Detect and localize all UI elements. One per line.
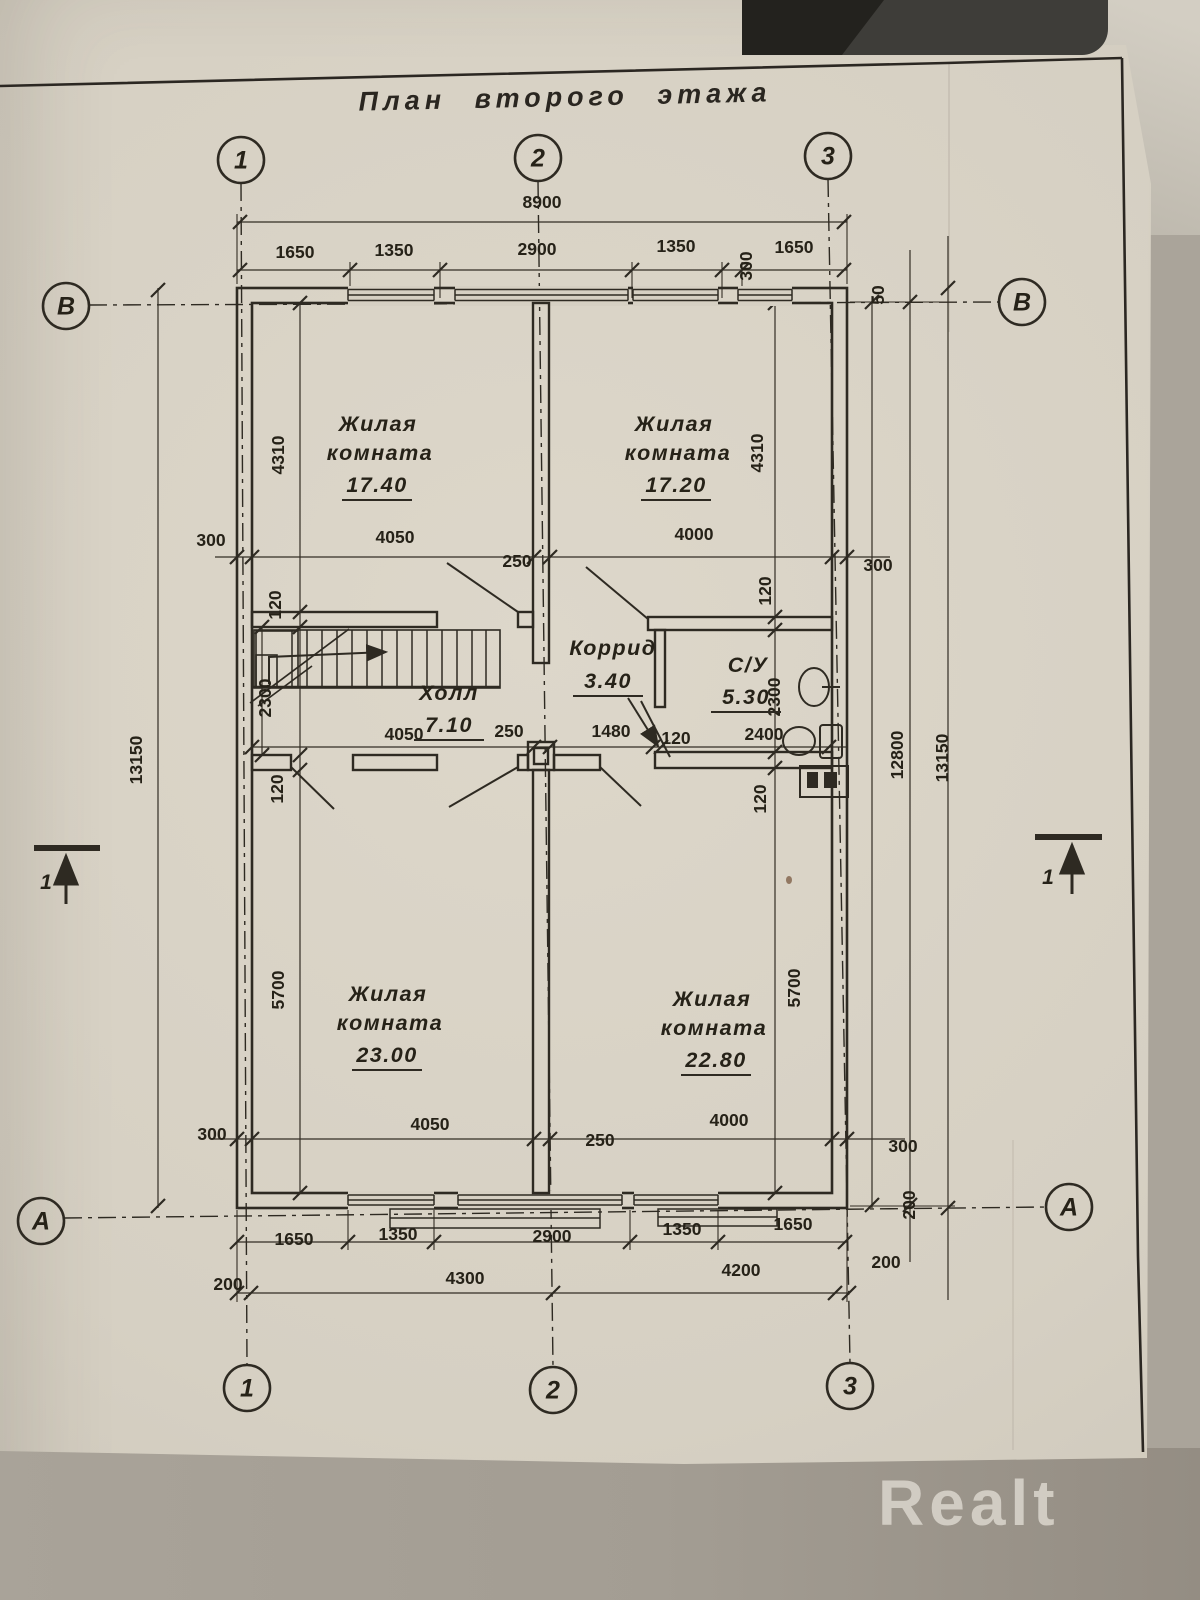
room-label: С/У [728,653,769,677]
dimension-label: 13150 [126,735,146,784]
dimension-label: 120 [750,784,770,813]
room-area-label: 7.10 [425,713,473,737]
dimension-label: 120 [267,774,287,803]
axis-marker-label: 3 [843,1373,857,1401]
room-area-label: 22.80 [684,1048,746,1072]
room-label: комната [337,1011,443,1035]
dark-object-on-table [742,0,1108,55]
room-label: Жилая [338,412,418,436]
room-label: комната [327,441,433,465]
dimension-label: 200 [899,1190,919,1219]
dimension-label: 300 [197,1124,226,1144]
dimension-label: 200 [871,1252,900,1272]
dimension-label: 1350 [379,1224,418,1244]
dimension-label: 5700 [784,968,804,1007]
dimension-label: 8900 [523,192,562,212]
dimension-label: 4050 [411,1114,450,1134]
dimension-label: 1480 [592,721,631,741]
photographed-floor-plan: { "title": "План второго этажа", "waterm… [0,0,1200,1600]
axis-marker-label: А [1059,1194,1078,1222]
room-label: Холл [418,681,478,705]
dimension-label: 120 [755,576,775,605]
axis-markers: 123123ВВАА [18,133,1092,1413]
dimension-label: 200 [213,1274,242,1294]
dimension-label: 1650 [774,1214,813,1234]
axis-marker-label: В [1013,289,1031,317]
dimension-label: 250 [502,551,531,571]
axis-marker-label: 1 [234,147,248,175]
axis-marker-label: А [31,1208,50,1236]
dimension-label: 13150 [932,733,952,782]
room-label: комната [625,441,731,465]
dimension-label: 4000 [710,1110,749,1130]
dimension-label: 300 [863,555,892,575]
floor-plan-drawing: 123123ВВАА 89001650135029001350300165030… [0,0,1200,1600]
room-label: Жилая [672,987,752,1011]
axis-marker-label: 1 [240,1375,254,1403]
room-area-label: 3.40 [584,669,632,693]
dimension-label: 1650 [775,237,814,257]
room-label: Коррид [569,636,656,660]
dimension-label: 1350 [657,236,696,256]
dimension-label: 2900 [518,239,557,259]
dimension-label: 250 [494,721,523,741]
room-area-label: 5.30 [722,685,770,709]
room-label: Жилая [634,412,714,436]
dimension-label: 1650 [275,1229,314,1249]
room-label: Жилая [348,982,428,1006]
dimension-label: 1350 [375,240,414,260]
axis-marker-label: 2 [530,145,545,173]
axis-marker-label: В [57,293,75,321]
room-area-label: 23.00 [355,1043,417,1067]
dimension-label: 50 [868,285,888,305]
dimension-label: 12800 [887,730,907,779]
dimension-label: 250 [585,1130,614,1150]
dimension-label: 4310 [268,435,288,474]
realt-watermark: Realt [878,1466,1060,1540]
washing-machine-symbol [800,766,848,797]
dimension-label: 2900 [533,1226,572,1246]
room-area-label: 17.20 [645,473,706,497]
dimension-label: 1650 [276,242,315,262]
dimension-label: 300 [196,530,225,550]
dimension-label: 5700 [268,970,288,1009]
section-number: 1 [40,871,52,894]
dimension-label: 4000 [675,524,714,544]
room-label: комната [661,1016,767,1040]
dimension-label: 4300 [446,1268,485,1288]
section-number: 1 [1042,866,1054,889]
window-symbols-bottom [348,1191,777,1228]
dimension-label: 4050 [376,527,415,547]
dimension-label: 1350 [663,1219,702,1239]
room-area-label: 17.40 [346,473,407,497]
axis-marker-label: 2 [545,1377,560,1405]
dimension-label: 300 [888,1136,917,1156]
sink-symbol [799,668,840,706]
dimension-label: 4200 [722,1260,761,1280]
dimension-label: 120 [265,590,285,619]
dimension-label: 4310 [747,433,767,472]
dimension-label: 2400 [745,724,784,744]
dimension-label: 2300 [255,678,275,717]
axis-marker-label: 3 [821,143,835,171]
dimension-label: 300 [736,251,756,280]
dimension-label: 120 [661,728,690,748]
